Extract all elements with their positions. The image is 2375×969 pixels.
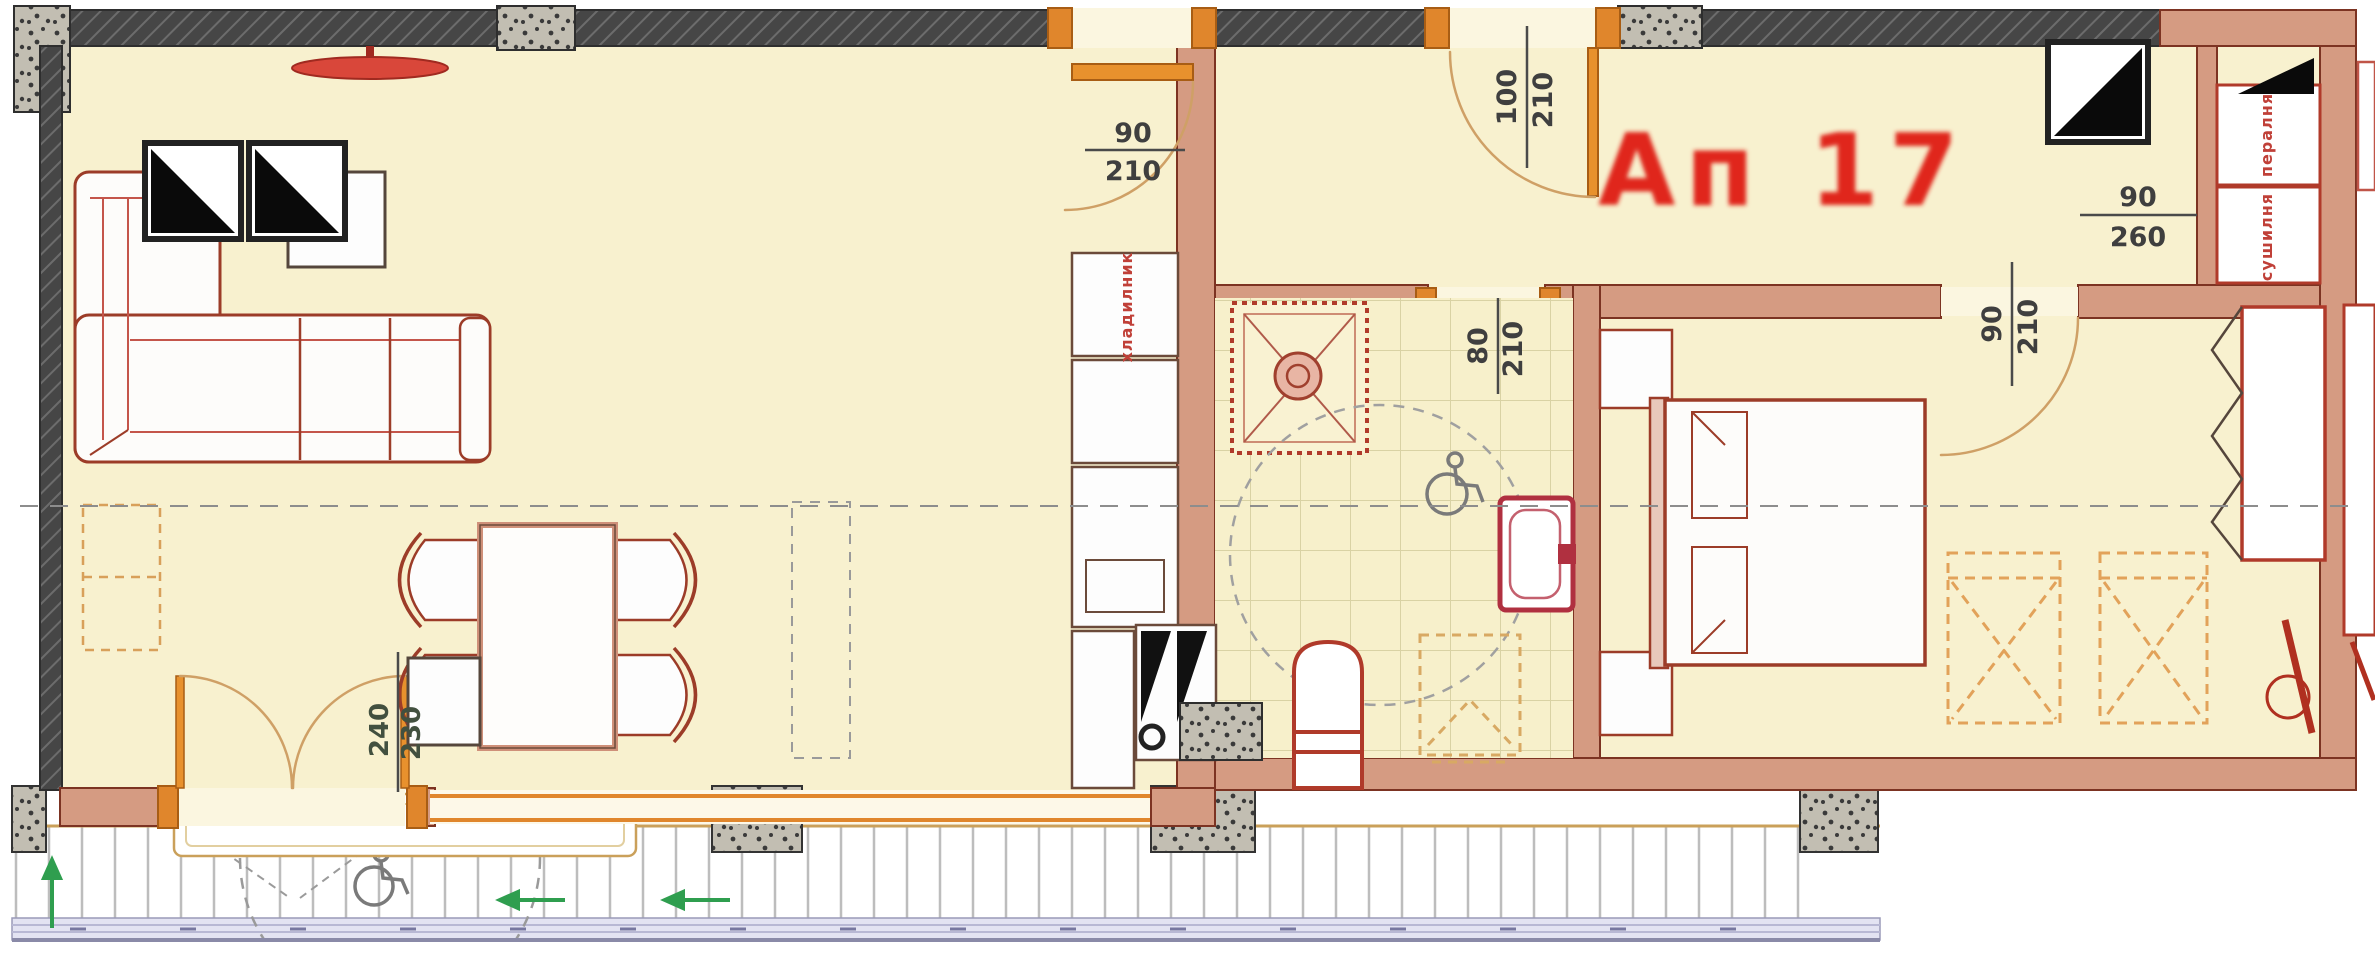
dim-bathroom-height: 210 (1498, 321, 1529, 377)
dim-balcony-width: 240 (365, 703, 395, 757)
dining-table (480, 525, 615, 748)
dim-bedroom-height: 210 (2013, 299, 2044, 355)
sink (1500, 498, 1576, 610)
dim-entrance-width: 100 (1492, 69, 1523, 125)
door-leaf (1072, 64, 1193, 80)
apartment-label: Ап 17 (1598, 112, 1968, 229)
laundry-closet: пералня сушилня (2217, 85, 2320, 283)
kitchen-cabinet (1072, 467, 1178, 627)
shower (1232, 303, 1367, 453)
dim-laundry-height: 260 (2110, 222, 2166, 253)
kitchen-cabinet (1072, 631, 1134, 788)
door-leaf (1588, 48, 1598, 196)
washer-label: пералня (2257, 93, 2276, 177)
nightstand (1600, 330, 1672, 408)
floor-plan-page: хладилник (0, 0, 2375, 969)
kitchen-cabinet (1072, 360, 1178, 463)
dim-living-width: 90 (1114, 118, 1152, 149)
dim-laundry-width: 90 (2119, 182, 2157, 213)
bed (1650, 398, 1925, 668)
fridge-label: хладилник (1117, 252, 1136, 363)
dim-living-height: 210 (1105, 156, 1161, 187)
pier (1800, 786, 1878, 852)
dryer-label: сушилня (2257, 193, 2276, 281)
dim-bathroom-width: 80 (1463, 327, 1494, 365)
pillow (1692, 412, 1747, 518)
dim-balcony-height: 230 (397, 706, 427, 760)
pillow (1692, 547, 1747, 653)
dim-entrance-height: 210 (1528, 72, 1559, 128)
door-leaf (176, 676, 184, 788)
dim-bedroom-width: 90 (1977, 305, 2008, 343)
pier (12, 786, 46, 852)
floor-plan-drawing: хладилник (0, 0, 2375, 969)
toilet (1294, 642, 1362, 788)
